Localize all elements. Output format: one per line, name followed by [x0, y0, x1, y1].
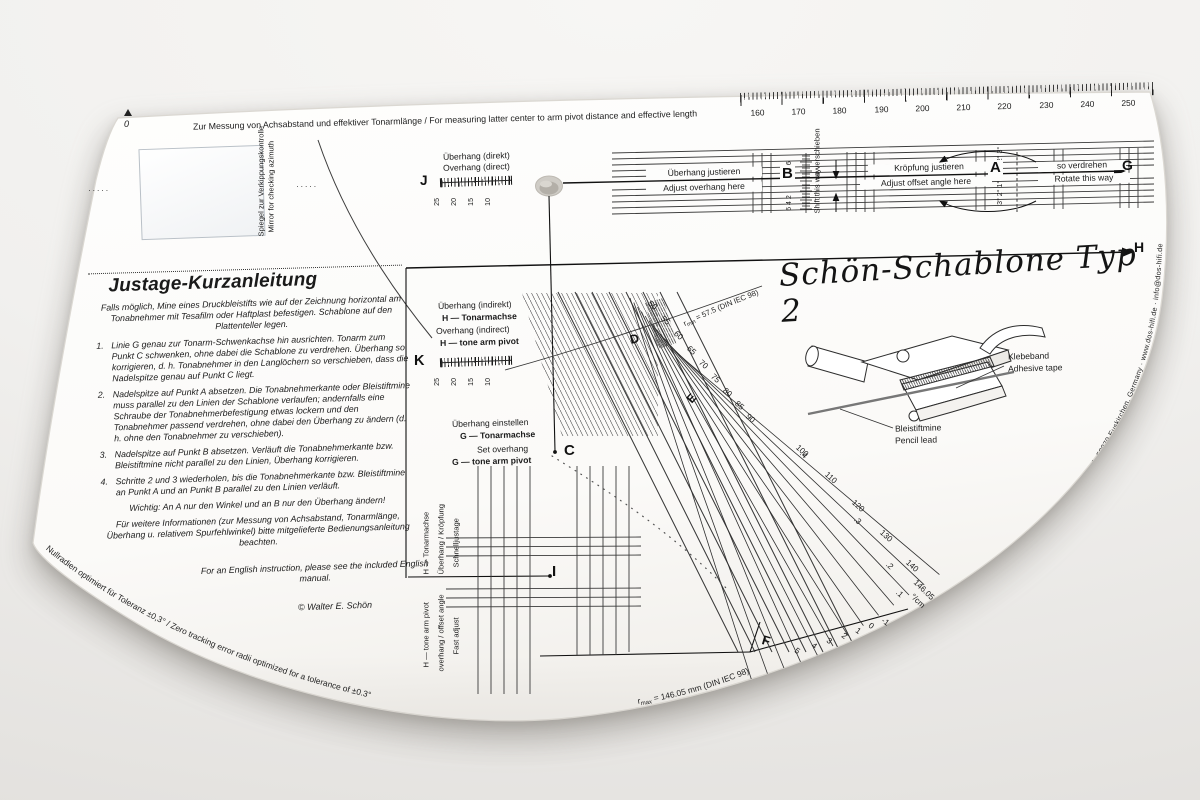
k-label-en1: Overhang (indirect): [436, 325, 510, 337]
ruler-value: 170: [791, 106, 805, 116]
point-b: B: [780, 166, 795, 183]
mirror-label-de: Spiegel zur Verkippungskontrolle: [258, 126, 267, 237]
ruler-value: 210: [956, 102, 970, 112]
k-label-en2: H — tone arm pivot: [440, 337, 519, 349]
instructions-intro: Falls möglich, Mine eines Druckbleistift…: [93, 293, 410, 336]
instruction-step-3: 3.Nadelspitze auf Punkt B absetzen. Verl…: [98, 440, 415, 472]
instruction-step-4: 4.Schritte 2 und 3 wiederholen, bis die …: [98, 467, 415, 499]
ruler-value: 230: [1039, 100, 1053, 110]
k-value: 25: [434, 378, 442, 386]
ruler-value: 220: [997, 101, 1011, 111]
ruler-value: 190: [874, 104, 888, 114]
photo-scene: rmin = 57.5 (DIN IEC 98) rmax = 146.05 m…: [0, 0, 1200, 800]
ruler-value: 180: [832, 105, 846, 115]
mirror-label-en: Mirror for checking azimuth: [268, 141, 277, 233]
point-k: K: [414, 353, 424, 369]
step-number: 2.: [96, 389, 115, 445]
j-value: 15: [468, 198, 476, 206]
instruction-step-2: 2.Nadelspitze auf Punkt A absetzen. Die …: [96, 380, 414, 445]
gset-de2: G — Tonarmachse: [460, 430, 536, 442]
b-scale-bottom: 6 4 2: [786, 195, 794, 211]
mirror-panel: [138, 145, 265, 240]
step-text: Linie G genau zur Tonarm-Schwenkachse hi…: [111, 331, 411, 384]
fast-de2: Überhang / Kröpfung: [438, 504, 447, 575]
tape-label-de: Klebeband: [1008, 351, 1049, 362]
lead-label-en: Pencil lead: [895, 435, 937, 446]
point-c: C: [564, 443, 575, 460]
j-value: 20: [451, 198, 459, 206]
point-g: G: [1122, 158, 1133, 174]
a-deg-bottom: 3° 2° 1°: [997, 181, 1005, 205]
ruler-value: 200: [915, 103, 929, 113]
ruler-value: 250: [1121, 98, 1135, 108]
ruler-value: 240: [1080, 99, 1094, 109]
step-number: 3.: [98, 449, 116, 472]
step-text: Nadelspitze auf Punkt A absetzen. Die To…: [113, 380, 414, 444]
gset-de1: Überhang einstellen: [452, 418, 529, 430]
fast-de1: Schnelljustage: [453, 518, 462, 567]
fast-en2: overhang / offset angle: [438, 594, 447, 671]
zero-marker-icon: [124, 109, 132, 116]
dots-left: ·····: [88, 186, 110, 196]
instructions-more: Für weitere Informationen (zur Messung v…: [100, 510, 417, 553]
gset-en1: Set overhang: [477, 444, 528, 455]
lead-label-de: Bleistiftmine: [895, 423, 942, 434]
band-shift-en: Shift this way: [814, 169, 823, 214]
point-i: I: [552, 564, 556, 581]
spindle-hole: [536, 176, 563, 196]
step-number: 1.: [94, 340, 112, 385]
fast-en1: Fast adjust: [453, 617, 462, 654]
k-value: 20: [451, 378, 459, 386]
step-text: Nadelspitze auf Punkt B absetzen. Verläu…: [115, 440, 415, 471]
ruler-value: 160: [750, 107, 764, 117]
zero-label: 0: [124, 119, 129, 129]
step-text: Schritte 2 und 3 wiederholen, bis die To…: [115, 467, 415, 498]
instruction-step-1: 1.Linie G genau zur Tonarm-Schwenkachse …: [94, 331, 411, 385]
j-value: 25: [434, 198, 442, 206]
point-a: A: [988, 160, 1003, 177]
k-value: 15: [468, 378, 476, 386]
j-value: 10: [485, 198, 493, 206]
fast-en3: H — tone arm pivot: [423, 602, 432, 667]
point-c-dot: [553, 450, 557, 454]
k-value: 10: [485, 378, 493, 386]
point-j: J: [420, 173, 428, 188]
step-number: 4.: [98, 476, 116, 499]
tape-label-en: Adhesive tape: [1008, 363, 1063, 374]
dots-right: ·····: [296, 182, 318, 192]
j-label-en: Overhang (direct): [443, 162, 510, 173]
k-label-de2: H — Tonarmachse: [442, 312, 517, 324]
instructions-block: Justage-Kurzanleitung Falls möglich, Min…: [92, 264, 417, 558]
k-label-de1: Überhang (indirekt): [438, 300, 512, 312]
